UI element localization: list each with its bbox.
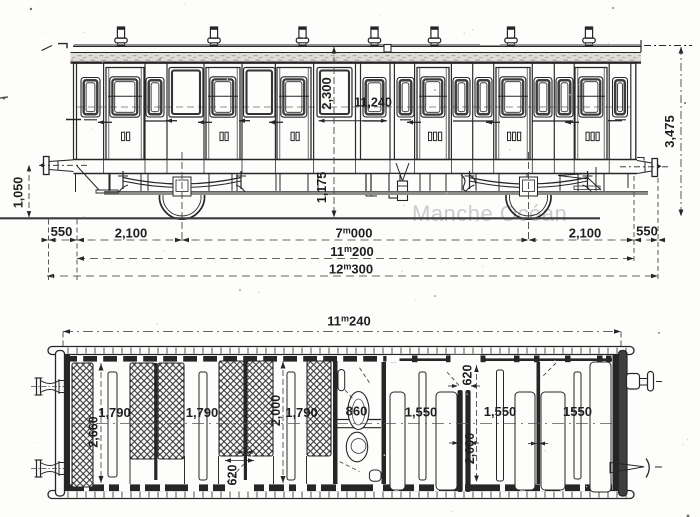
svg-text:1,050: 1,050	[12, 177, 26, 208]
svg-text:550: 550	[51, 224, 73, 239]
svg-text:620: 620	[461, 365, 475, 386]
svg-text:11m200: 11m200	[330, 244, 373, 259]
svg-text:1,550: 1,550	[405, 405, 438, 420]
svg-text:620: 620	[226, 465, 240, 486]
svg-text:2,100: 2,100	[569, 226, 602, 241]
svg-text:2,100: 2,100	[115, 226, 148, 241]
svg-text:11,240: 11,240	[354, 95, 392, 109]
svg-text:2,000: 2,000	[463, 433, 477, 464]
svg-text:11m240: 11m240	[327, 314, 370, 329]
svg-text:1,550: 1,550	[484, 404, 517, 419]
svg-text:1,790: 1,790	[285, 405, 318, 420]
svg-text:1550: 1550	[563, 404, 592, 419]
svg-text:2,000: 2,000	[269, 395, 283, 426]
svg-text:1,790: 1,790	[186, 405, 219, 420]
svg-text:7m000: 7m000	[336, 226, 373, 241]
svg-text:1,790: 1,790	[98, 405, 131, 420]
svg-text:2,300: 2,300	[319, 77, 334, 110]
svg-text:2,660: 2,660	[87, 416, 101, 447]
svg-text:3,475: 3,475	[662, 115, 677, 148]
svg-text:860: 860	[346, 404, 368, 419]
svg-text:12m300: 12m300	[329, 262, 373, 277]
svg-text:550: 550	[636, 224, 658, 239]
svg-text:1,175: 1,175	[315, 172, 329, 203]
